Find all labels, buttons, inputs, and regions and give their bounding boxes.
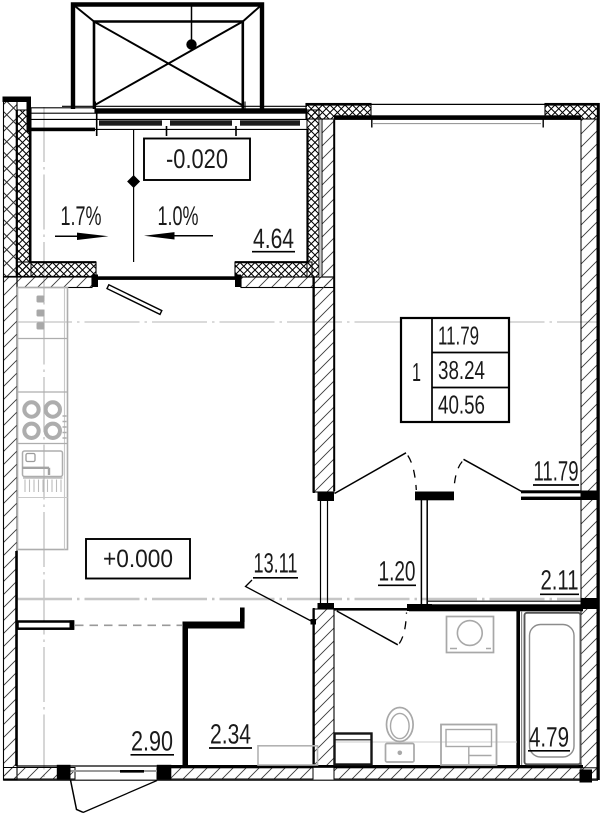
svg-text:4.79: 4.79 [529, 722, 569, 753]
svg-text:2.34: 2.34 [210, 719, 251, 750]
svg-text:1.20: 1.20 [379, 556, 416, 587]
svg-text:2.90: 2.90 [131, 726, 173, 757]
svg-text:11.79: 11.79 [438, 321, 479, 351]
svg-text:38.24: 38.24 [438, 355, 485, 385]
svg-text:1: 1 [412, 357, 421, 387]
svg-text:+0.000: +0.000 [103, 545, 173, 573]
svg-text:1.7%: 1.7% [61, 201, 102, 231]
svg-text:-0.020: -0.020 [166, 144, 228, 174]
svg-text:2.11: 2.11 [541, 565, 579, 596]
svg-text:1.0%: 1.0% [158, 201, 199, 231]
svg-text:40.56: 40.56 [438, 390, 485, 420]
svg-text:4.64: 4.64 [253, 223, 294, 254]
svg-text:11.79: 11.79 [534, 456, 579, 487]
svg-text:13.11: 13.11 [254, 548, 298, 579]
